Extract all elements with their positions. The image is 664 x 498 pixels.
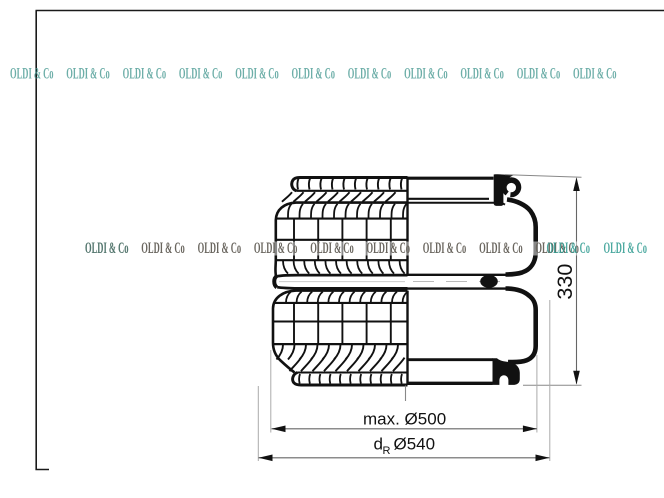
svg-text:OLDI & Co: OLDI & Co (179, 66, 223, 83)
svg-text:OLDI & Co: OLDI & Co (460, 66, 504, 83)
svg-text:OLDI & Co: OLDI & Co (235, 66, 279, 83)
svg-text:OLDI & Co: OLDI & Co (66, 66, 110, 83)
svg-text:OLDI & Co: OLDI & Co (348, 66, 392, 83)
svg-text:OLDI & Co: OLDI & Co (141, 240, 185, 257)
svg-text:OLDI & Co: OLDI & Co (517, 66, 561, 83)
svg-text:OLDI & Co: OLDI & Co (573, 66, 617, 83)
svg-text:OLDI & Co: OLDI & Co (367, 240, 411, 257)
svg-text:OLDI & Co: OLDI & Co (479, 240, 522, 257)
svg-text:OLDI & Co: OLDI & Co (547, 240, 591, 257)
svg-text:OLDI & Co: OLDI & Co (254, 240, 298, 257)
svg-text:Ø540: Ø540 (394, 435, 436, 454)
svg-text:OLDI & Co: OLDI & Co (604, 240, 648, 257)
svg-text:R: R (383, 445, 391, 457)
svg-text:OLDI & Co: OLDI & Co (292, 66, 336, 83)
svg-text:max. Ø500: max. Ø500 (363, 410, 446, 429)
svg-text:OLDI & Co: OLDI & Co (310, 240, 354, 257)
svg-text:OLDI & Co: OLDI & Co (85, 240, 129, 257)
svg-text:OLDI & Co: OLDI & Co (198, 240, 242, 257)
svg-text:OLDI & Co: OLDI & Co (10, 66, 54, 83)
svg-text:330: 330 (553, 264, 577, 300)
svg-text:OLDI & Co: OLDI & Co (423, 240, 467, 257)
svg-text:OLDI & Co: OLDI & Co (123, 66, 167, 83)
svg-text:OLDI & Co: OLDI & Co (404, 66, 448, 83)
